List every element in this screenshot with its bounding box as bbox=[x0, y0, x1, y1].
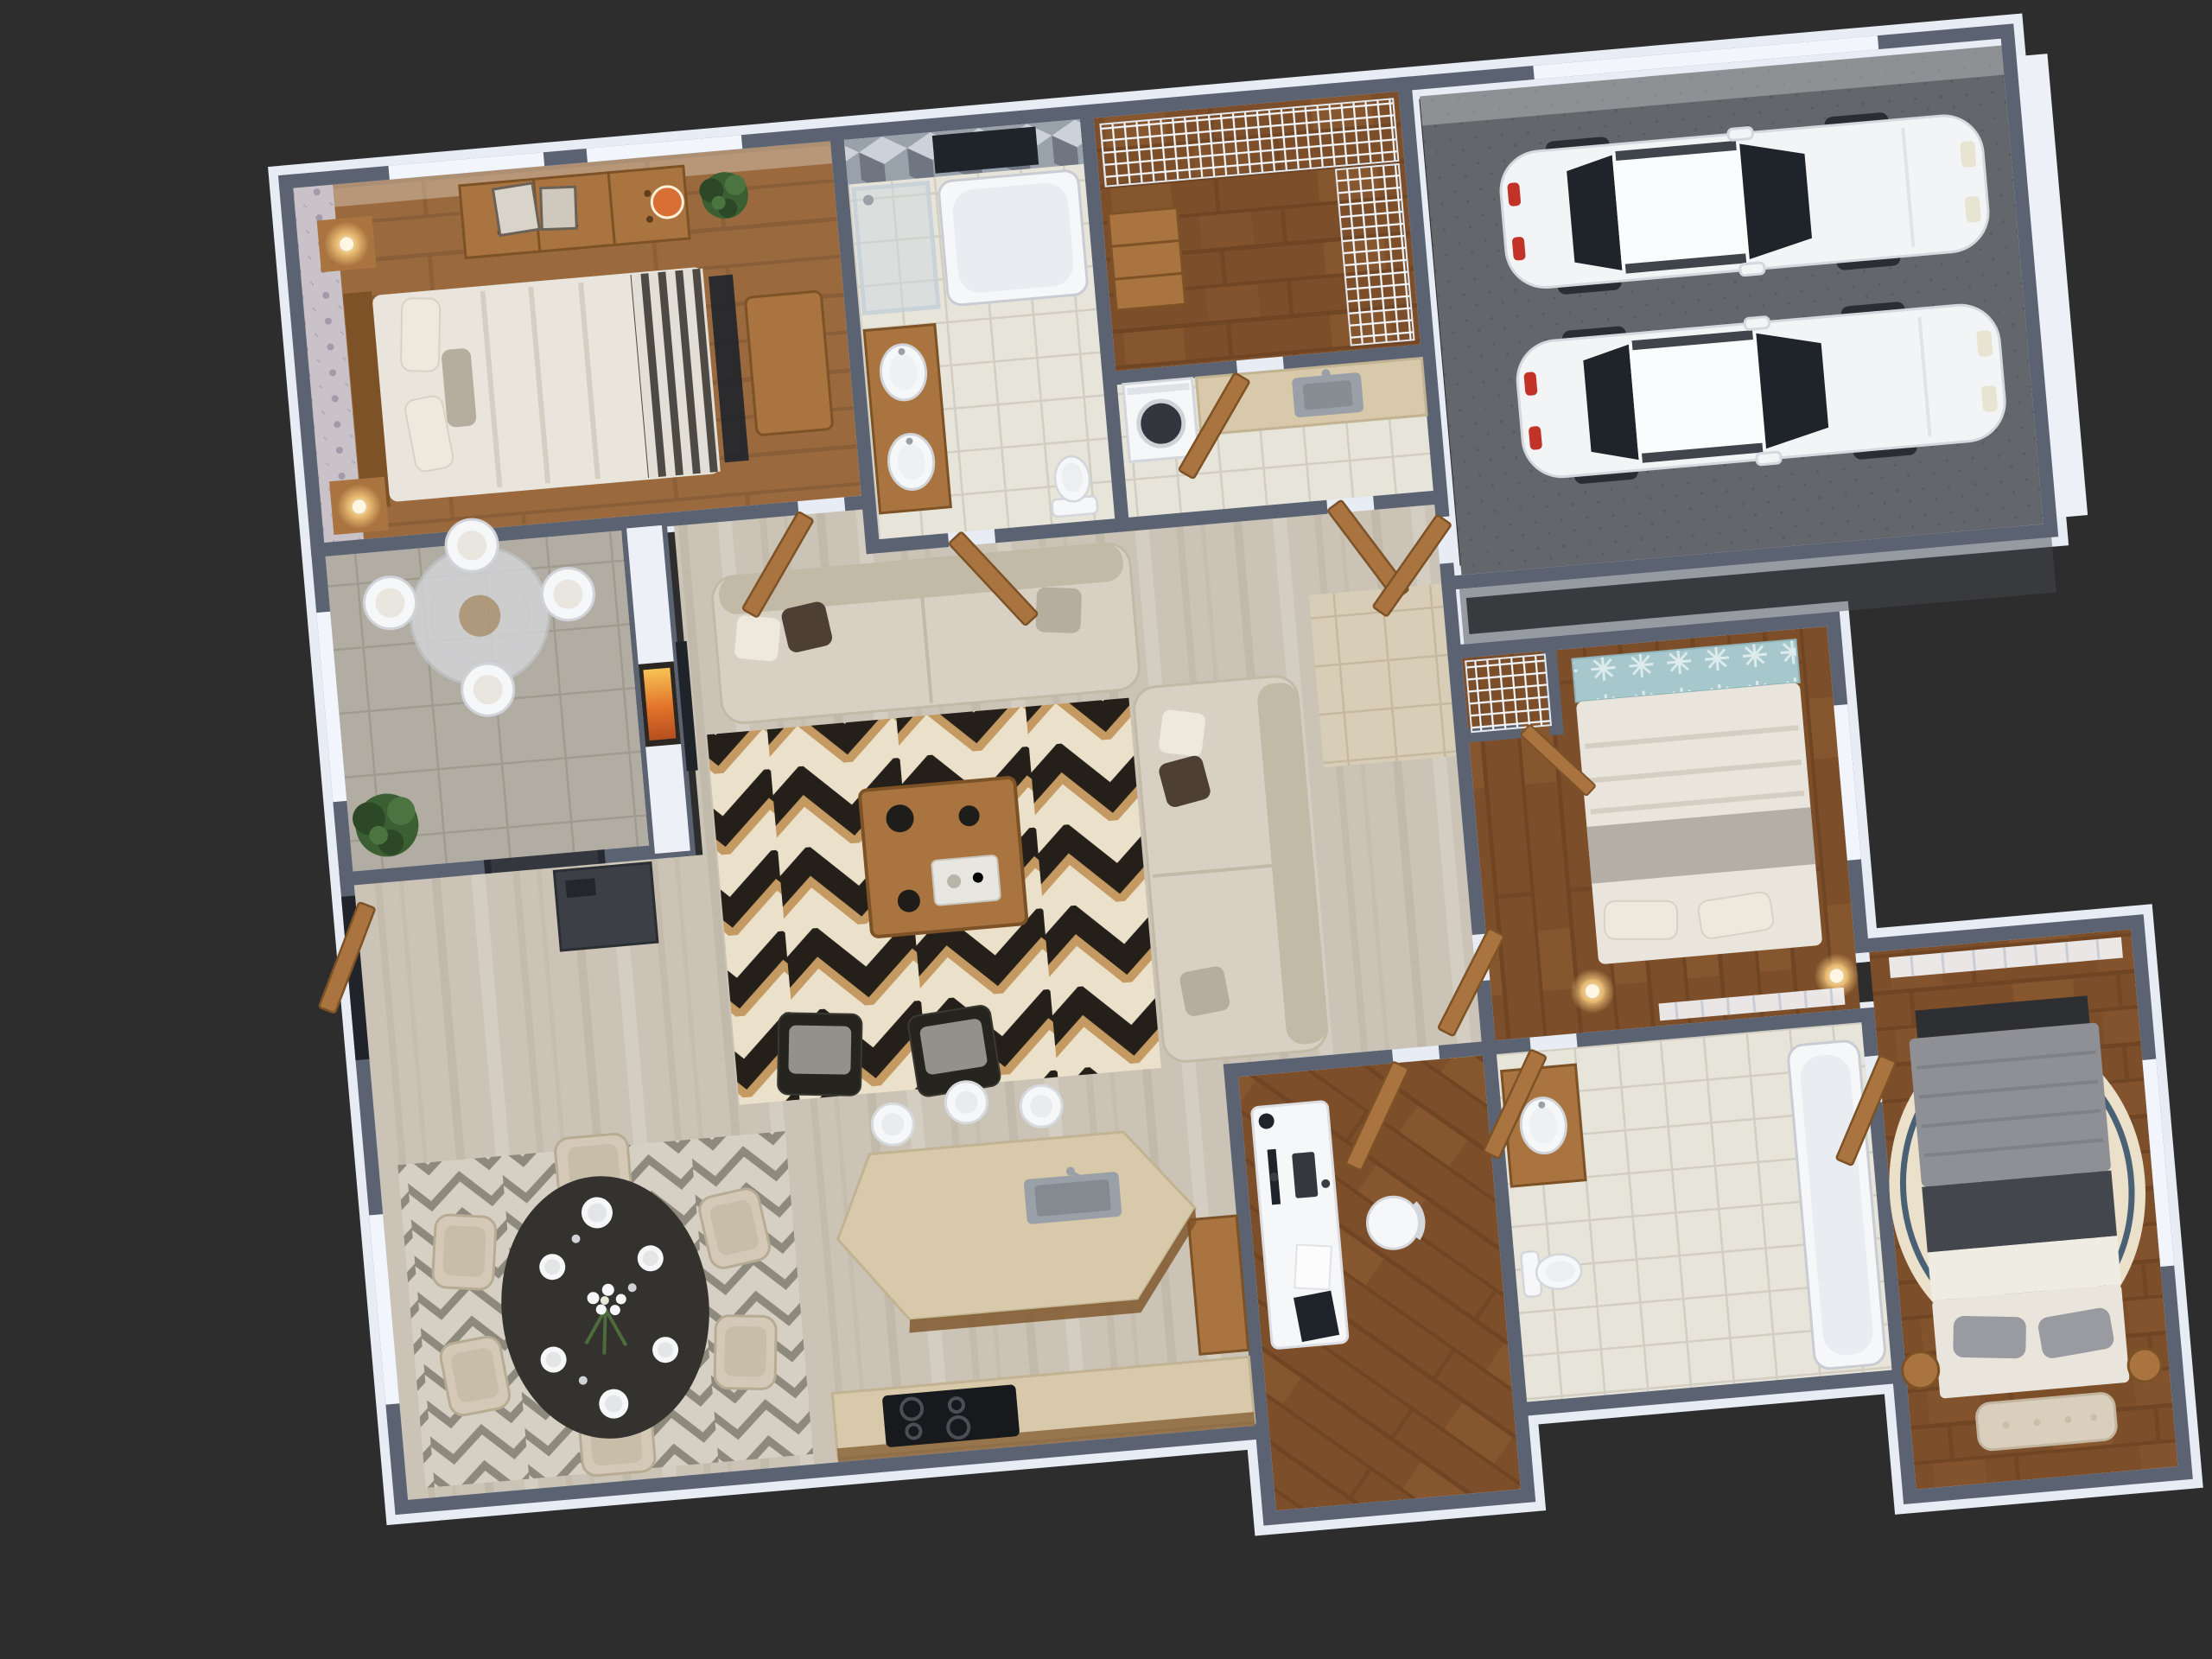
sofa-pillow bbox=[1179, 965, 1231, 1018]
dining-chair bbox=[432, 1214, 496, 1290]
papers bbox=[1294, 1244, 1332, 1289]
dining-chair bbox=[439, 1335, 512, 1418]
tv-console bbox=[554, 863, 658, 950]
wire-closet-nook bbox=[1465, 654, 1551, 732]
bed-pillow bbox=[1953, 1316, 2026, 1358]
sofa-right bbox=[1132, 675, 1328, 1064]
dining-chair bbox=[715, 1316, 776, 1389]
coffee-table bbox=[860, 777, 1027, 937]
bed-pillow bbox=[401, 298, 440, 372]
orange-table-lamp bbox=[651, 185, 684, 219]
accent-chair bbox=[778, 1013, 862, 1096]
dark-bed bbox=[1906, 995, 2129, 1398]
sofa-pillow bbox=[734, 614, 782, 663]
round-nightstand bbox=[2127, 1347, 2163, 1382]
sofa-pillow bbox=[1157, 708, 1207, 758]
gray-quilt bbox=[1909, 1022, 2111, 1187]
tall-cabinet bbox=[1188, 1216, 1248, 1354]
washing-machine bbox=[1123, 378, 1199, 462]
teal-bed bbox=[1572, 639, 1822, 964]
double-vanity bbox=[864, 325, 950, 513]
double-bed bbox=[343, 260, 750, 509]
bed-pillow bbox=[1605, 901, 1677, 939]
shower bbox=[854, 183, 938, 314]
dining-area bbox=[397, 1119, 813, 1491]
sofa-pillow bbox=[1035, 587, 1082, 633]
closet-dresser bbox=[1108, 208, 1185, 311]
accent-chair bbox=[907, 1004, 1002, 1097]
bathtub bbox=[938, 169, 1088, 306]
keyboard bbox=[1292, 1152, 1318, 1198]
foot-bench bbox=[745, 291, 833, 435]
floorplan-render bbox=[0, 0, 2212, 1659]
